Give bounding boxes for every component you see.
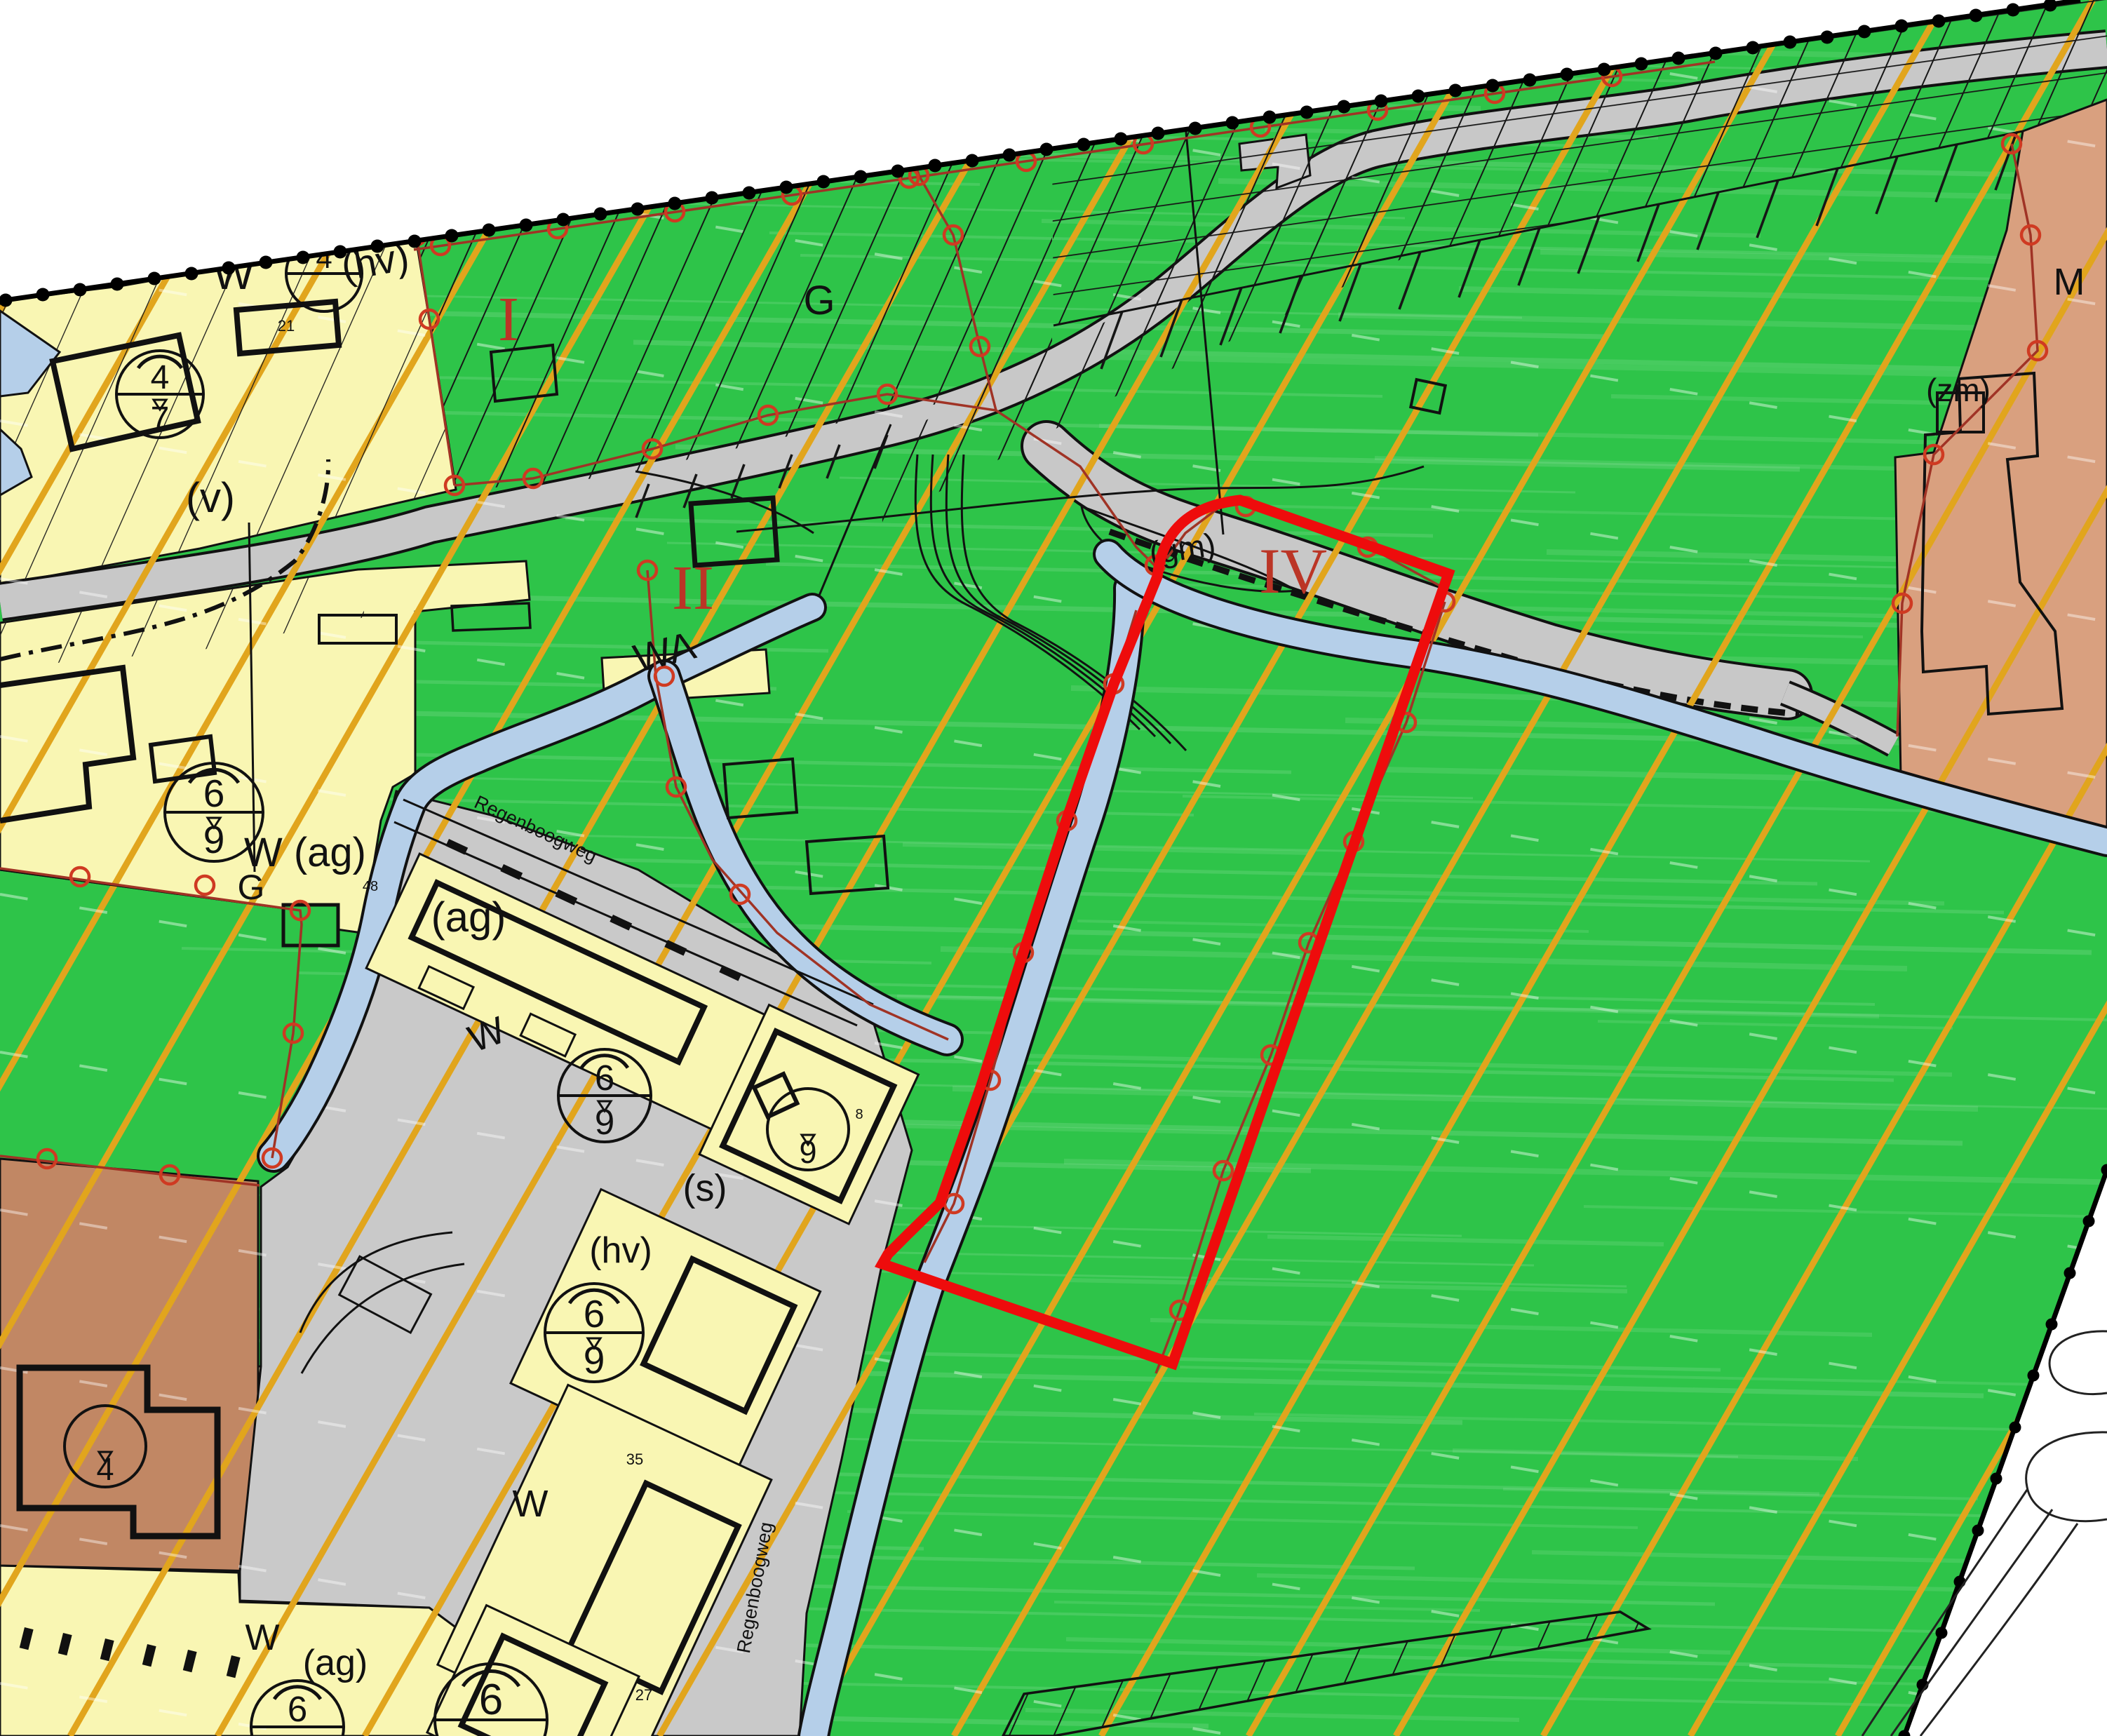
svg-text:9: 9	[203, 818, 225, 861]
svg-text:M: M	[2054, 261, 2085, 303]
svg-text:4: 4	[151, 359, 170, 396]
svg-text:7: 7	[151, 401, 170, 438]
svg-text:4: 4	[96, 1451, 114, 1487]
svg-text:9: 9	[799, 1134, 816, 1170]
svg-text:9: 9	[584, 1338, 605, 1382]
svg-text:48: 48	[363, 879, 378, 894]
svg-text:6: 6	[203, 772, 225, 815]
svg-text:II: II	[672, 553, 714, 623]
svg-text:G: G	[803, 278, 835, 323]
svg-text:(ag): (ag)	[303, 1643, 368, 1683]
svg-text:27: 27	[635, 1686, 652, 1704]
svg-text:(zm): (zm)	[1926, 372, 1991, 408]
svg-text:6: 6	[288, 1689, 307, 1729]
svg-text:35: 35	[626, 1451, 643, 1468]
svg-text:4: 4	[316, 241, 332, 274]
svg-text:G: G	[238, 868, 265, 907]
svg-text:IV: IV	[1259, 535, 1327, 607]
svg-text:(ag): (ag)	[431, 894, 506, 941]
svg-text:W: W	[245, 1617, 279, 1658]
svg-text:(s): (s)	[683, 1167, 727, 1209]
svg-text:6: 6	[479, 1676, 503, 1724]
svg-text:(v): (v)	[186, 474, 235, 521]
svg-text:W: W	[513, 1483, 548, 1525]
svg-text:9: 9	[595, 1102, 614, 1142]
svg-text:6: 6	[595, 1058, 614, 1098]
svg-text:(hv): (hv)	[589, 1230, 652, 1271]
svg-text:6: 6	[584, 1292, 605, 1335]
svg-text:W: W	[213, 250, 255, 299]
svg-text:8: 8	[855, 1107, 863, 1122]
svg-text:I: I	[498, 285, 519, 354]
svg-text:21: 21	[278, 317, 295, 335]
